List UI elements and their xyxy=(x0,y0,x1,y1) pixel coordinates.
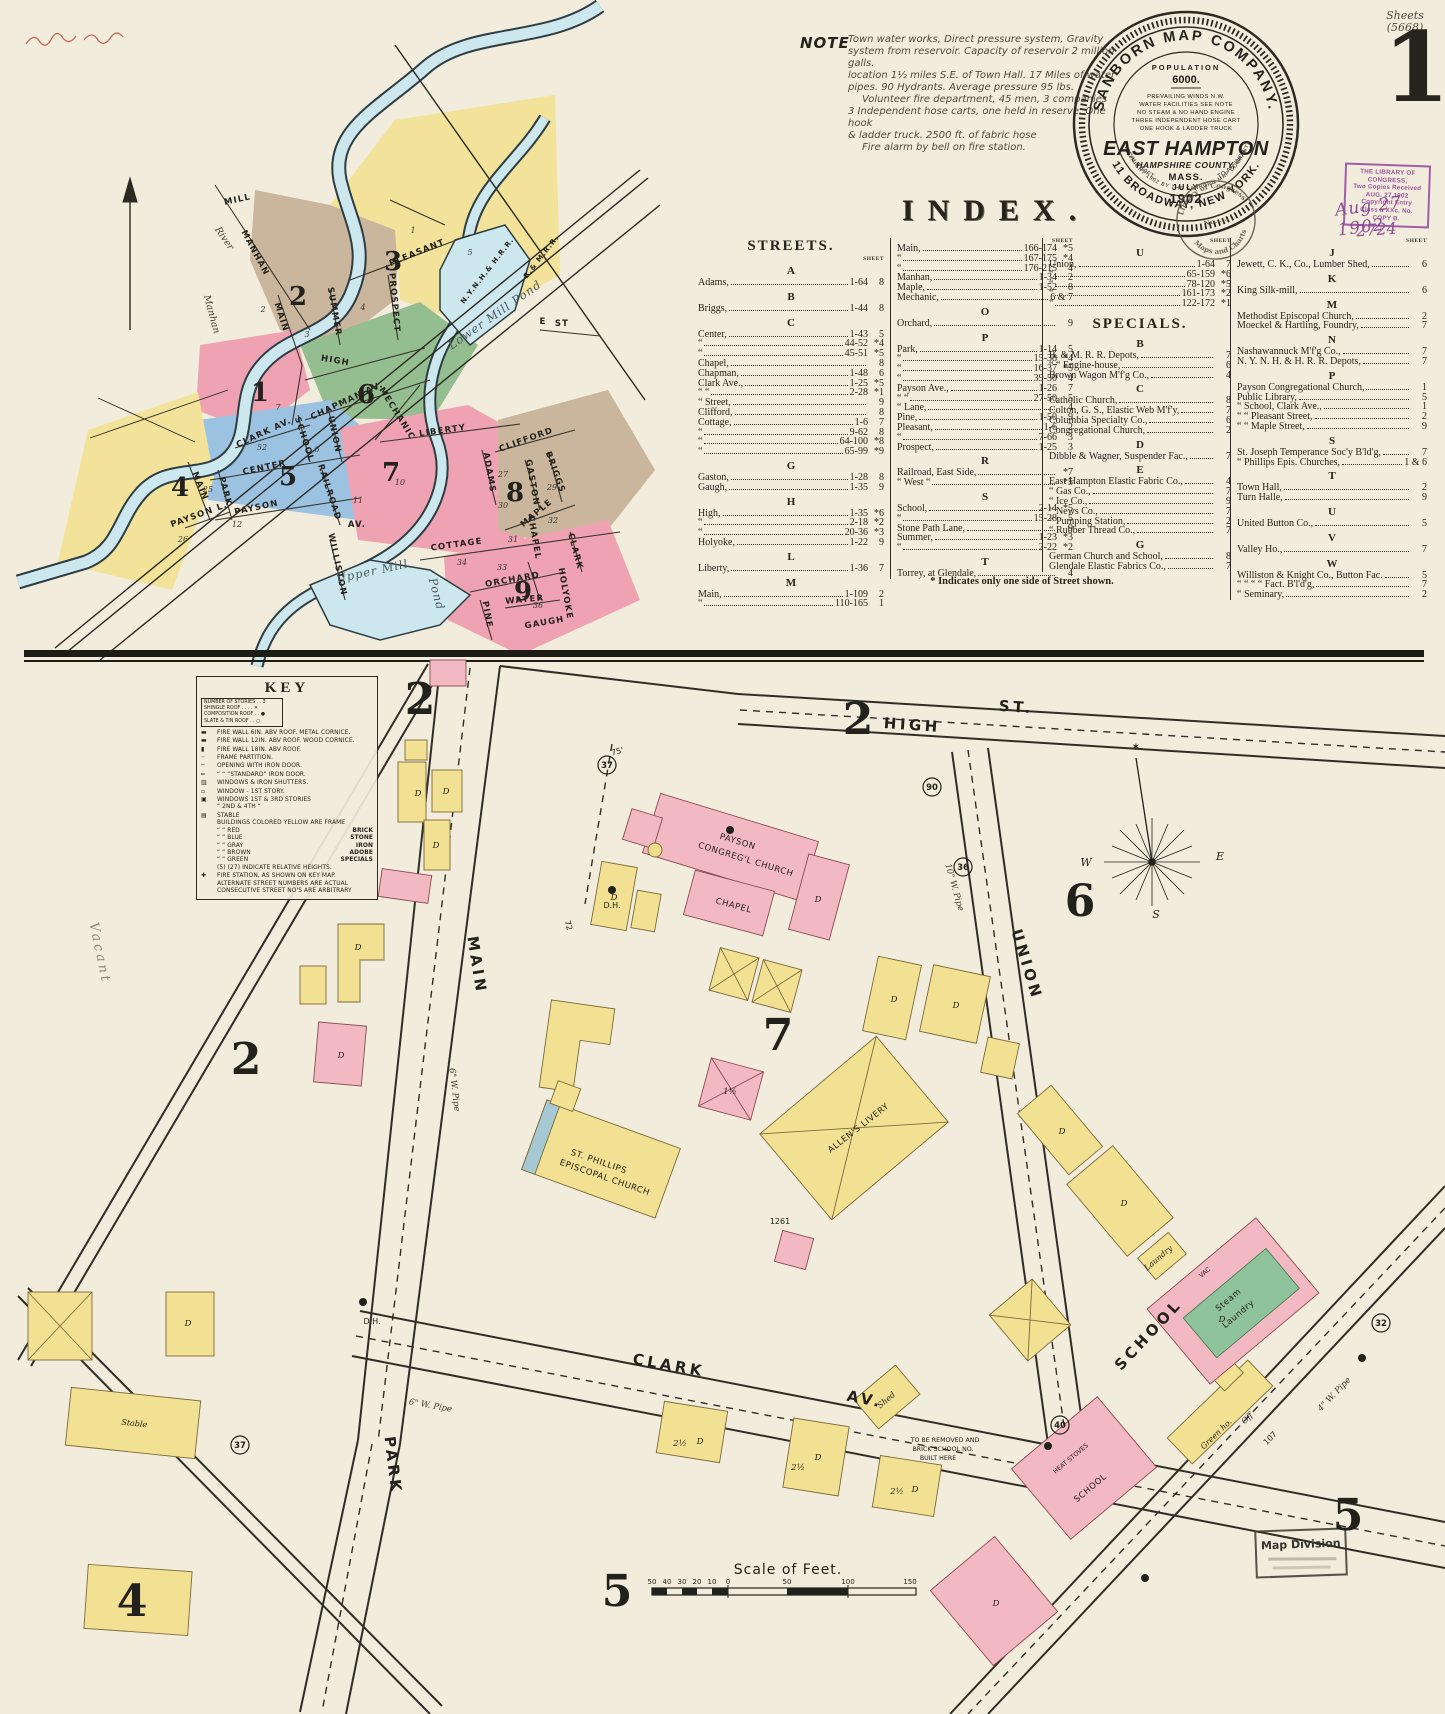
overview-block-number: 1 xyxy=(410,226,415,235)
overview-block-number: 29 xyxy=(546,483,557,492)
map-label: 4" W. Pipe xyxy=(1315,1375,1353,1414)
key-symbol: ▬ xyxy=(201,729,217,736)
map-label: D xyxy=(911,1485,919,1495)
key-row: ▤ STABLE xyxy=(201,812,373,820)
stamp-fact: PREVAILING WINDS N.W. xyxy=(1147,94,1225,100)
key-symbol: ─ xyxy=(201,762,217,769)
overview-block-number: 30 xyxy=(498,501,508,510)
hydrant-dot xyxy=(1358,1354,1366,1362)
overview-block-number: 4 xyxy=(359,303,365,312)
map-label: 75' xyxy=(610,746,624,758)
index-row: B xyxy=(1049,337,1231,351)
key-symbol: ▫ xyxy=(201,788,217,795)
index-row: C xyxy=(698,316,884,330)
overview-block-number: 6 xyxy=(314,445,319,454)
map-label: 6" W. Pipe xyxy=(408,1397,453,1414)
key-row: ▬ FIRE WALL 12IN. ABV ROOF. WOOD CORNICE… xyxy=(201,737,373,745)
map-label: UNION xyxy=(1007,927,1046,1002)
index-row: K xyxy=(1237,272,1427,286)
hydrant-dot xyxy=(359,1298,367,1306)
index-row: King Silk-mill,6 xyxy=(1237,286,1427,296)
map-label: 2½ xyxy=(889,1486,904,1497)
index-footnote: * Indicates only one side of Street show… xyxy=(812,576,1232,587)
key-row: ▫ WINDOW - 1ST STORY. xyxy=(201,788,373,796)
key-symbol: ✚ xyxy=(201,872,217,879)
stamp-county: HAMPSHIRE COUNTY, xyxy=(1136,160,1235,170)
index-row: “ “ Maple Street,9 xyxy=(1237,422,1427,432)
index-row: Liberty,1-367 xyxy=(698,564,884,574)
index-row: C xyxy=(1049,382,1231,396)
index-row: “ Rubber Thread Co.,7 xyxy=(1049,526,1231,536)
map-label: CLARK xyxy=(631,1350,706,1380)
index-row: SPECIALS. xyxy=(1049,313,1231,335)
index-row: D xyxy=(1049,438,1231,452)
map-label: Vacant xyxy=(86,921,114,985)
map-label: 107 xyxy=(1262,1430,1279,1447)
overview-street-label: Manhan xyxy=(201,293,222,335)
overview-district-number: 9 xyxy=(514,577,532,607)
overview-street-label: MILL xyxy=(223,192,252,207)
index-row: Moeckel & Hartling, Foundry,7 xyxy=(1237,321,1427,331)
map-label: D xyxy=(992,1599,1000,1609)
index-row: S xyxy=(1237,434,1427,448)
index-row: M xyxy=(1237,298,1427,312)
key-row: ✚ FIRE STATION, AS SHOWN ON KEY MAP. xyxy=(201,872,373,880)
stamp-fact: THREE INDEPENDENT HOSE CART xyxy=(1132,118,1241,124)
index-row: W xyxy=(1237,557,1427,571)
sheet-col-label: SHEET xyxy=(1237,238,1427,244)
index-row: J xyxy=(1237,246,1427,260)
index-row: A xyxy=(698,264,884,278)
key-symbol: ▬ xyxy=(201,737,217,744)
index-row: Glendale Elastic Fabrics Co.,7 xyxy=(1049,562,1231,572)
index-row: G xyxy=(1049,538,1231,552)
key-symbol: ═ xyxy=(201,771,217,778)
map-label: 1½ xyxy=(723,1086,737,1097)
hydrant-dot xyxy=(1141,1574,1149,1582)
key-title: KEY xyxy=(201,680,373,697)
map-label: 1261 xyxy=(770,1217,790,1226)
key-row: ┈ FRAME PARTITION. xyxy=(201,754,373,762)
key-mini-row: SLATE & TIN ROOF . . ○ xyxy=(204,719,280,725)
map-label: D xyxy=(1120,1199,1128,1209)
map-label: D xyxy=(1218,1315,1226,1325)
overview-block-number: 11 xyxy=(353,496,363,505)
index-row: Briggs,1-448 xyxy=(698,304,884,314)
map-label: S xyxy=(1152,908,1160,921)
index-column-1: STREETS. SHEET A Adams,1-648 B Briggs,1-… xyxy=(698,238,884,609)
overview-block-number: 34 xyxy=(457,558,467,567)
map-label: PARK xyxy=(380,1435,405,1495)
index-row: Turn Halle,9 xyxy=(1237,493,1427,503)
hydrant-dot xyxy=(726,826,734,834)
map-label: D xyxy=(890,995,898,1005)
index-row: “ Phillips Epis. Churches,1 & 6 xyxy=(1237,458,1427,468)
overview-block-number: 3 xyxy=(304,330,309,339)
map-label: 100 xyxy=(841,1578,854,1586)
map-label: 0 xyxy=(726,1578,730,1586)
map-label: BUILT HERE xyxy=(920,1455,956,1462)
map-label: ✶ xyxy=(1132,742,1140,753)
map-label: 6" W. Pipe xyxy=(446,1068,461,1112)
overview-district-number: 3 xyxy=(384,247,402,277)
map-label: 2½ xyxy=(672,1438,687,1449)
note-label: NOTE xyxy=(800,34,850,52)
key-row: ═ “ “ “STANDARD” IRON DOOR. xyxy=(201,771,373,779)
index-row: Brown Wagon M'f'g Co.,4 xyxy=(1049,371,1231,381)
map-label: Scale of Feet. xyxy=(734,1562,843,1578)
index-row: Valley Ho.,7 xyxy=(1237,545,1427,555)
overview-block-number: 36 xyxy=(533,601,543,610)
map-label: 20 xyxy=(693,1578,702,1586)
key-symbol: ▮ xyxy=(201,746,217,753)
key-symbol: ▥ xyxy=(201,779,217,786)
overview-block-number: 33 xyxy=(497,563,507,572)
map-label: D xyxy=(952,1001,960,1011)
overview-street-label: E xyxy=(539,317,546,327)
key-row: “ 2ND & 4TH “ xyxy=(201,804,373,811)
index-row: Adams,1-648 xyxy=(698,278,884,288)
overview-block-number: 12 xyxy=(232,520,242,529)
map-label: D xyxy=(814,895,822,905)
index-column-3: SHEET U Union,1-647 “65-159*6 “78-120*5 xyxy=(1042,238,1231,572)
overview-district-number: 8 xyxy=(506,478,524,508)
key-row: “ “ BROWN ADOBE xyxy=(201,850,373,857)
key-row: “ “ GRAY IRON xyxy=(201,843,373,850)
key-row: “ “ BLUE STONE xyxy=(201,835,373,842)
index-row: B xyxy=(698,290,884,304)
compass-rose xyxy=(1104,758,1200,906)
map-label: D xyxy=(696,1437,704,1447)
map-label: BRICK SCHOOL NO. xyxy=(912,1446,973,1453)
key-row: (5) (27) INDICATE RELATIVE HEIGHTS. xyxy=(201,865,373,872)
hydrant-number: 32 xyxy=(1375,1319,1387,1329)
hydrant-number: 37 xyxy=(234,1441,246,1451)
map-label: 2 xyxy=(405,674,436,725)
svg-text:Library of Congress: Library of Congress xyxy=(1171,174,1250,218)
key-row: ▥ WINDOWS & IRON SHUTTERS. xyxy=(201,779,373,787)
map-label: D xyxy=(432,841,440,851)
index-row: Jewett, C. K., Co., Lumber Shed,6 xyxy=(1237,260,1427,270)
hydrant-dot xyxy=(608,886,616,894)
svg-text:Map Division: Map Division xyxy=(1261,1537,1341,1553)
streets-title: STREETS. xyxy=(698,238,884,255)
overview-block-number: 25 xyxy=(202,485,213,494)
overview-district-number: 4 xyxy=(171,473,189,503)
key-row: CONSECUTIVE STREET NO'S ARE ARBITRARY xyxy=(201,888,373,895)
key-symbol: ┈ xyxy=(201,754,217,761)
index-row: U xyxy=(1049,246,1231,260)
key-row: ALTERNATE STREET NUMBERS ARE ACTUAL xyxy=(201,881,373,888)
overview-block-number: 5 xyxy=(467,248,472,257)
map-label: D xyxy=(354,943,362,953)
index-column-4: SHEET J Jewett, C. K., Co., Lumber Shed,… xyxy=(1230,238,1427,600)
map-label: D xyxy=(610,893,618,903)
scale-bar xyxy=(652,1585,916,1598)
index-row: “110-1651 xyxy=(698,599,884,609)
key-row: BUILDINGS COLORED YELLOW ARE FRAME xyxy=(201,820,373,827)
map-label: 2 xyxy=(843,694,874,745)
index-row: L xyxy=(698,550,884,564)
stamp-fact: NO STEAM & NO HAND ENGINE xyxy=(1137,110,1235,116)
key-row: “ “ GREEN SPECIALS xyxy=(201,857,373,864)
map-label: D xyxy=(1058,1127,1066,1137)
overview-district-number: 5 xyxy=(279,462,297,492)
key-symbol: ▤ xyxy=(201,812,217,819)
map-label: E xyxy=(1215,850,1224,863)
map-label: D xyxy=(337,1051,345,1061)
index-row: Holyoke,1-229 xyxy=(698,538,884,548)
map-label: 7 xyxy=(763,1010,794,1061)
overview-street-label: River xyxy=(212,224,237,253)
overview-block-number: 31 xyxy=(508,535,518,544)
index-row: H xyxy=(698,495,884,509)
key-row: ▬ FIRE WALL 6IN. ABV ROOF. METAL CORNICE… xyxy=(201,729,373,737)
overview-street-label: ST xyxy=(555,319,569,329)
overview-block-number: 2 xyxy=(259,305,265,314)
overview-district-number: 6 xyxy=(357,380,375,410)
overview-street-label: AV. xyxy=(348,520,366,530)
map-label: D xyxy=(442,787,450,797)
hydrant-number: 36 xyxy=(957,863,969,873)
key-row: ▮ FIRE WALL 18IN. ABV ROOF. xyxy=(201,746,373,754)
overview-block-number: 27 xyxy=(497,470,509,479)
index-row: N. Y. N. H. & H. R. R. Depots,7 xyxy=(1237,357,1427,367)
map-label: 72 xyxy=(563,919,574,931)
map-label: D xyxy=(414,789,422,799)
index-title: INDEX. xyxy=(856,194,1136,228)
map-label: 6 xyxy=(1065,876,1096,927)
map-label: TO BE REMOVED AND xyxy=(910,1437,980,1444)
index-row: P xyxy=(1237,369,1427,383)
sheet-col-label: SHEET xyxy=(698,256,884,262)
map-label: 2½ xyxy=(790,1462,805,1473)
overview-block-number: 52 xyxy=(257,443,267,452)
overview-key-map: MILLMANHANRiverManhanMAINHIGHSUMMERPLEAS… xyxy=(0,0,680,668)
map-label: 50 xyxy=(783,1578,792,1586)
key-row: ─ OPENING WITH IRON DOOR. xyxy=(201,762,373,770)
sheet-number: 1 xyxy=(1383,18,1443,118)
hydrant-number: 37 xyxy=(601,761,613,771)
map-label: D xyxy=(184,1319,192,1329)
overview-block-number: 26 xyxy=(177,535,188,544)
stamp-fact: WATER FACILITIES SEE NOTE xyxy=(1139,102,1232,108)
key-row: ▣ WINDOWS 1ST & 3RD STORIES xyxy=(201,796,373,804)
stamp-city: EAST HAMPTON xyxy=(1103,138,1269,160)
map-label: D.H. xyxy=(363,1317,380,1326)
stamp-fact: ONE HOOK & LADDER TRUCK xyxy=(1140,126,1233,132)
index-row: “122-172*1 xyxy=(1049,299,1231,309)
map-label: MAIN xyxy=(463,935,490,996)
map-label: ST. xyxy=(998,697,1034,717)
stamp-population: 6000. xyxy=(1172,74,1200,86)
index-row: Dibble & Wagner, Suspender Fac.,7 xyxy=(1049,452,1231,462)
map-label: 30 xyxy=(678,1578,687,1586)
map-label: 150 xyxy=(903,1578,916,1586)
index-row: E xyxy=(1049,463,1231,477)
hydrant-dot xyxy=(1044,1442,1052,1450)
key-symbol: ▣ xyxy=(201,796,217,803)
map-label: 10 xyxy=(708,1578,717,1586)
map-label: 50 xyxy=(648,1578,657,1586)
overview-district-number: 2 xyxy=(289,282,307,312)
index-row: G xyxy=(698,459,884,473)
index-row: Gaugh,1-359 xyxy=(698,483,884,493)
index-row: N xyxy=(1237,333,1427,347)
map-label: D xyxy=(814,1453,822,1463)
map-label: 5 xyxy=(602,1566,633,1617)
map-key: KEY NUMBER OF STORIES . . 3SHINGLE ROOF … xyxy=(196,676,378,900)
index-row: United Button Co.,5 xyxy=(1237,519,1427,529)
sheet-col-label: SHEET xyxy=(1049,238,1231,244)
map-label: W xyxy=(1080,856,1093,869)
key-row: “ “ RED BRICK xyxy=(201,828,373,835)
key-mini-table: NUMBER OF STORIES . . 3SHINGLE ROOF . . … xyxy=(201,698,283,727)
overview-block-number: 10 xyxy=(395,478,405,487)
hydrant-number: 90 xyxy=(926,783,938,793)
index-row: “65-99*9 xyxy=(698,447,884,457)
st-phillips-church xyxy=(522,1079,688,1218)
index-row: “ Seminary,2 xyxy=(1237,590,1427,600)
overview-block-number: 32 xyxy=(548,516,558,525)
stamp-population-label: POPULATION xyxy=(1152,63,1221,72)
index-row: Congregational Church,2 xyxy=(1049,426,1231,436)
index-row: U xyxy=(1237,505,1427,519)
overview-district-number: 1 xyxy=(251,378,269,408)
hydrant-number: 40 xyxy=(1054,1421,1066,1431)
map-label: 2 xyxy=(231,1034,262,1085)
index-row: T xyxy=(1237,469,1427,483)
map-label: 40 xyxy=(663,1578,672,1586)
svg-text:No......: No...... xyxy=(1203,213,1230,228)
map-label: 5 xyxy=(1333,1490,1364,1541)
water-pipe-lines xyxy=(322,668,1445,1714)
sanborn-map-sheet: MILLMANHANRiverManhanMAINHIGHSUMMERPLEAS… xyxy=(0,0,1445,1714)
map-label: 4 xyxy=(117,1576,148,1627)
index-row: V xyxy=(1237,531,1427,545)
